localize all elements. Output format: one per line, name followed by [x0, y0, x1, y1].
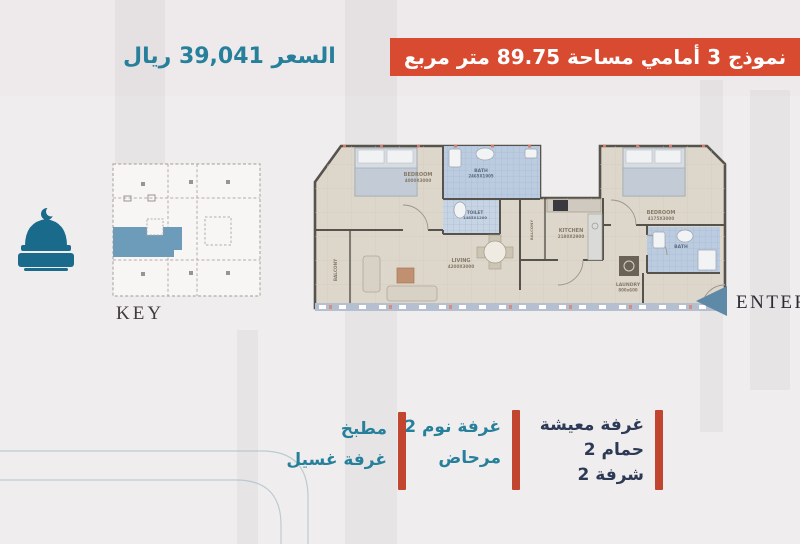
legend-column-3: مطبخ غرفة غسيل — [286, 412, 406, 490]
legend-item-bathrooms: حمام 2 — [540, 438, 644, 463]
bed-2 — [623, 148, 685, 196]
room-dims-kitchen: 2180X2900 — [558, 234, 585, 239]
model-banner: نموذج 3 أمامي مساحة 89.75 متر مربع — [390, 38, 800, 76]
mosque-icon — [14, 204, 78, 272]
legend-item-toilet: مرحاض — [404, 443, 501, 474]
key-label: KEY — [116, 303, 164, 325]
enter-label: ENTER — [736, 292, 800, 313]
washing-machine — [619, 256, 639, 276]
room-label-balcony-2: BALCONY — [529, 220, 534, 240]
key-map — [104, 158, 264, 302]
legend-bar — [512, 410, 520, 490]
room-dims-laundry: 800x600 — [618, 288, 637, 293]
room-dims-bedroom-2: 4175X3000 — [648, 216, 675, 221]
legend-item-kitchen: مطبخ — [286, 414, 387, 445]
legend-item-bedrooms: غرفة نوم 2 — [404, 412, 501, 443]
room-label-bath-2: BATH — [674, 244, 688, 250]
room-dims-bedroom-1: 4000X3000 — [405, 178, 432, 183]
legend-bar — [398, 412, 406, 490]
legend-column-1: غرفة معيشة حمام 2 شرفة 2 — [540, 410, 663, 490]
model-banner-text: نموذج 3 أمامي مساحة 89.75 متر مربع — [404, 45, 786, 69]
room-dims-bath-1: 2465X1905 — [468, 174, 494, 179]
price-text: السعر 39,041 ريال — [123, 44, 383, 69]
floor-plan: BEDROOM 4000X3000 BATH 2465X1905 TOILET … — [303, 140, 800, 320]
legend-column-2: غرفة نوم 2 مرحاض — [404, 410, 520, 490]
legend-item-balconies: شرفة 2 — [540, 463, 644, 488]
legend-item-laundry-room: غرفة غسيل — [286, 445, 387, 476]
legend-bar — [655, 410, 663, 490]
legend-item-living-room: غرفة معيشة — [540, 413, 644, 438]
room-dims-living: 4200X3000 — [448, 264, 475, 269]
decor-curves — [0, 440, 330, 544]
room-dims-toilet: 1485X1200 — [463, 215, 487, 220]
room-label-balcony-1: BALCONY — [333, 258, 338, 281]
